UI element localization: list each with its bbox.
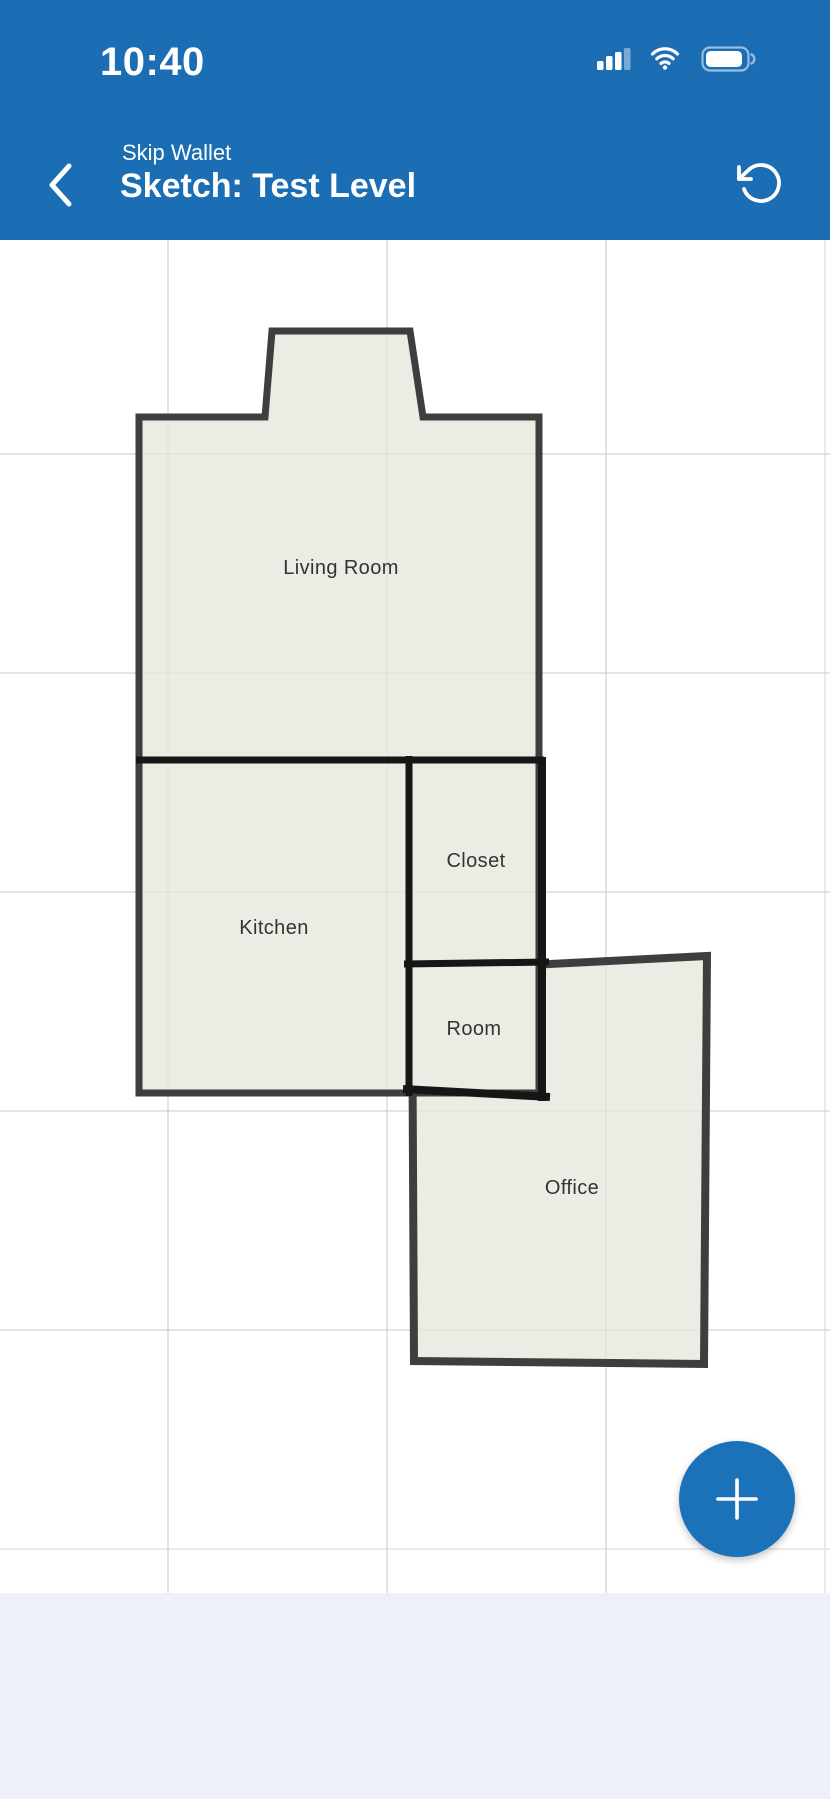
room-label-kitchen: Kitchen <box>239 917 309 939</box>
room-label-closet: Closet <box>446 850 505 872</box>
room-label-living-room: Living Room <box>283 557 399 579</box>
room-label-room: Room <box>447 1018 502 1040</box>
chevron-left-icon <box>46 162 74 208</box>
add-room-fab[interactable] <box>679 1441 795 1557</box>
status-time: 10:40 <box>100 40 205 85</box>
back-button[interactable] <box>36 154 84 218</box>
battery-icon <box>701 46 758 72</box>
app-screen: 10:40 Skip Wallet Sketch: Test Level <box>0 0 830 1799</box>
plus-icon <box>679 1441 795 1557</box>
page-title: Sketch: Test Level <box>120 167 416 206</box>
header: 10:40 Skip Wallet Sketch: Test Level <box>0 0 830 240</box>
room-living-room[interactable] <box>139 331 539 1093</box>
room-label-office: Office <box>545 1177 599 1199</box>
sketch-canvas[interactable]: Living Room Kitchen Closet Room Office <box>0 240 830 1593</box>
floor-plan: Living Room Kitchen Closet Room Office <box>0 240 830 1593</box>
header-subtitle: Skip Wallet <box>122 140 231 166</box>
undo-button[interactable] <box>733 156 789 212</box>
cellular-signal-icon <box>597 46 631 72</box>
bottom-toolbar <box>0 1593 830 1799</box>
rotate-ccw-icon <box>737 159 785 207</box>
wifi-icon <box>650 47 680 70</box>
